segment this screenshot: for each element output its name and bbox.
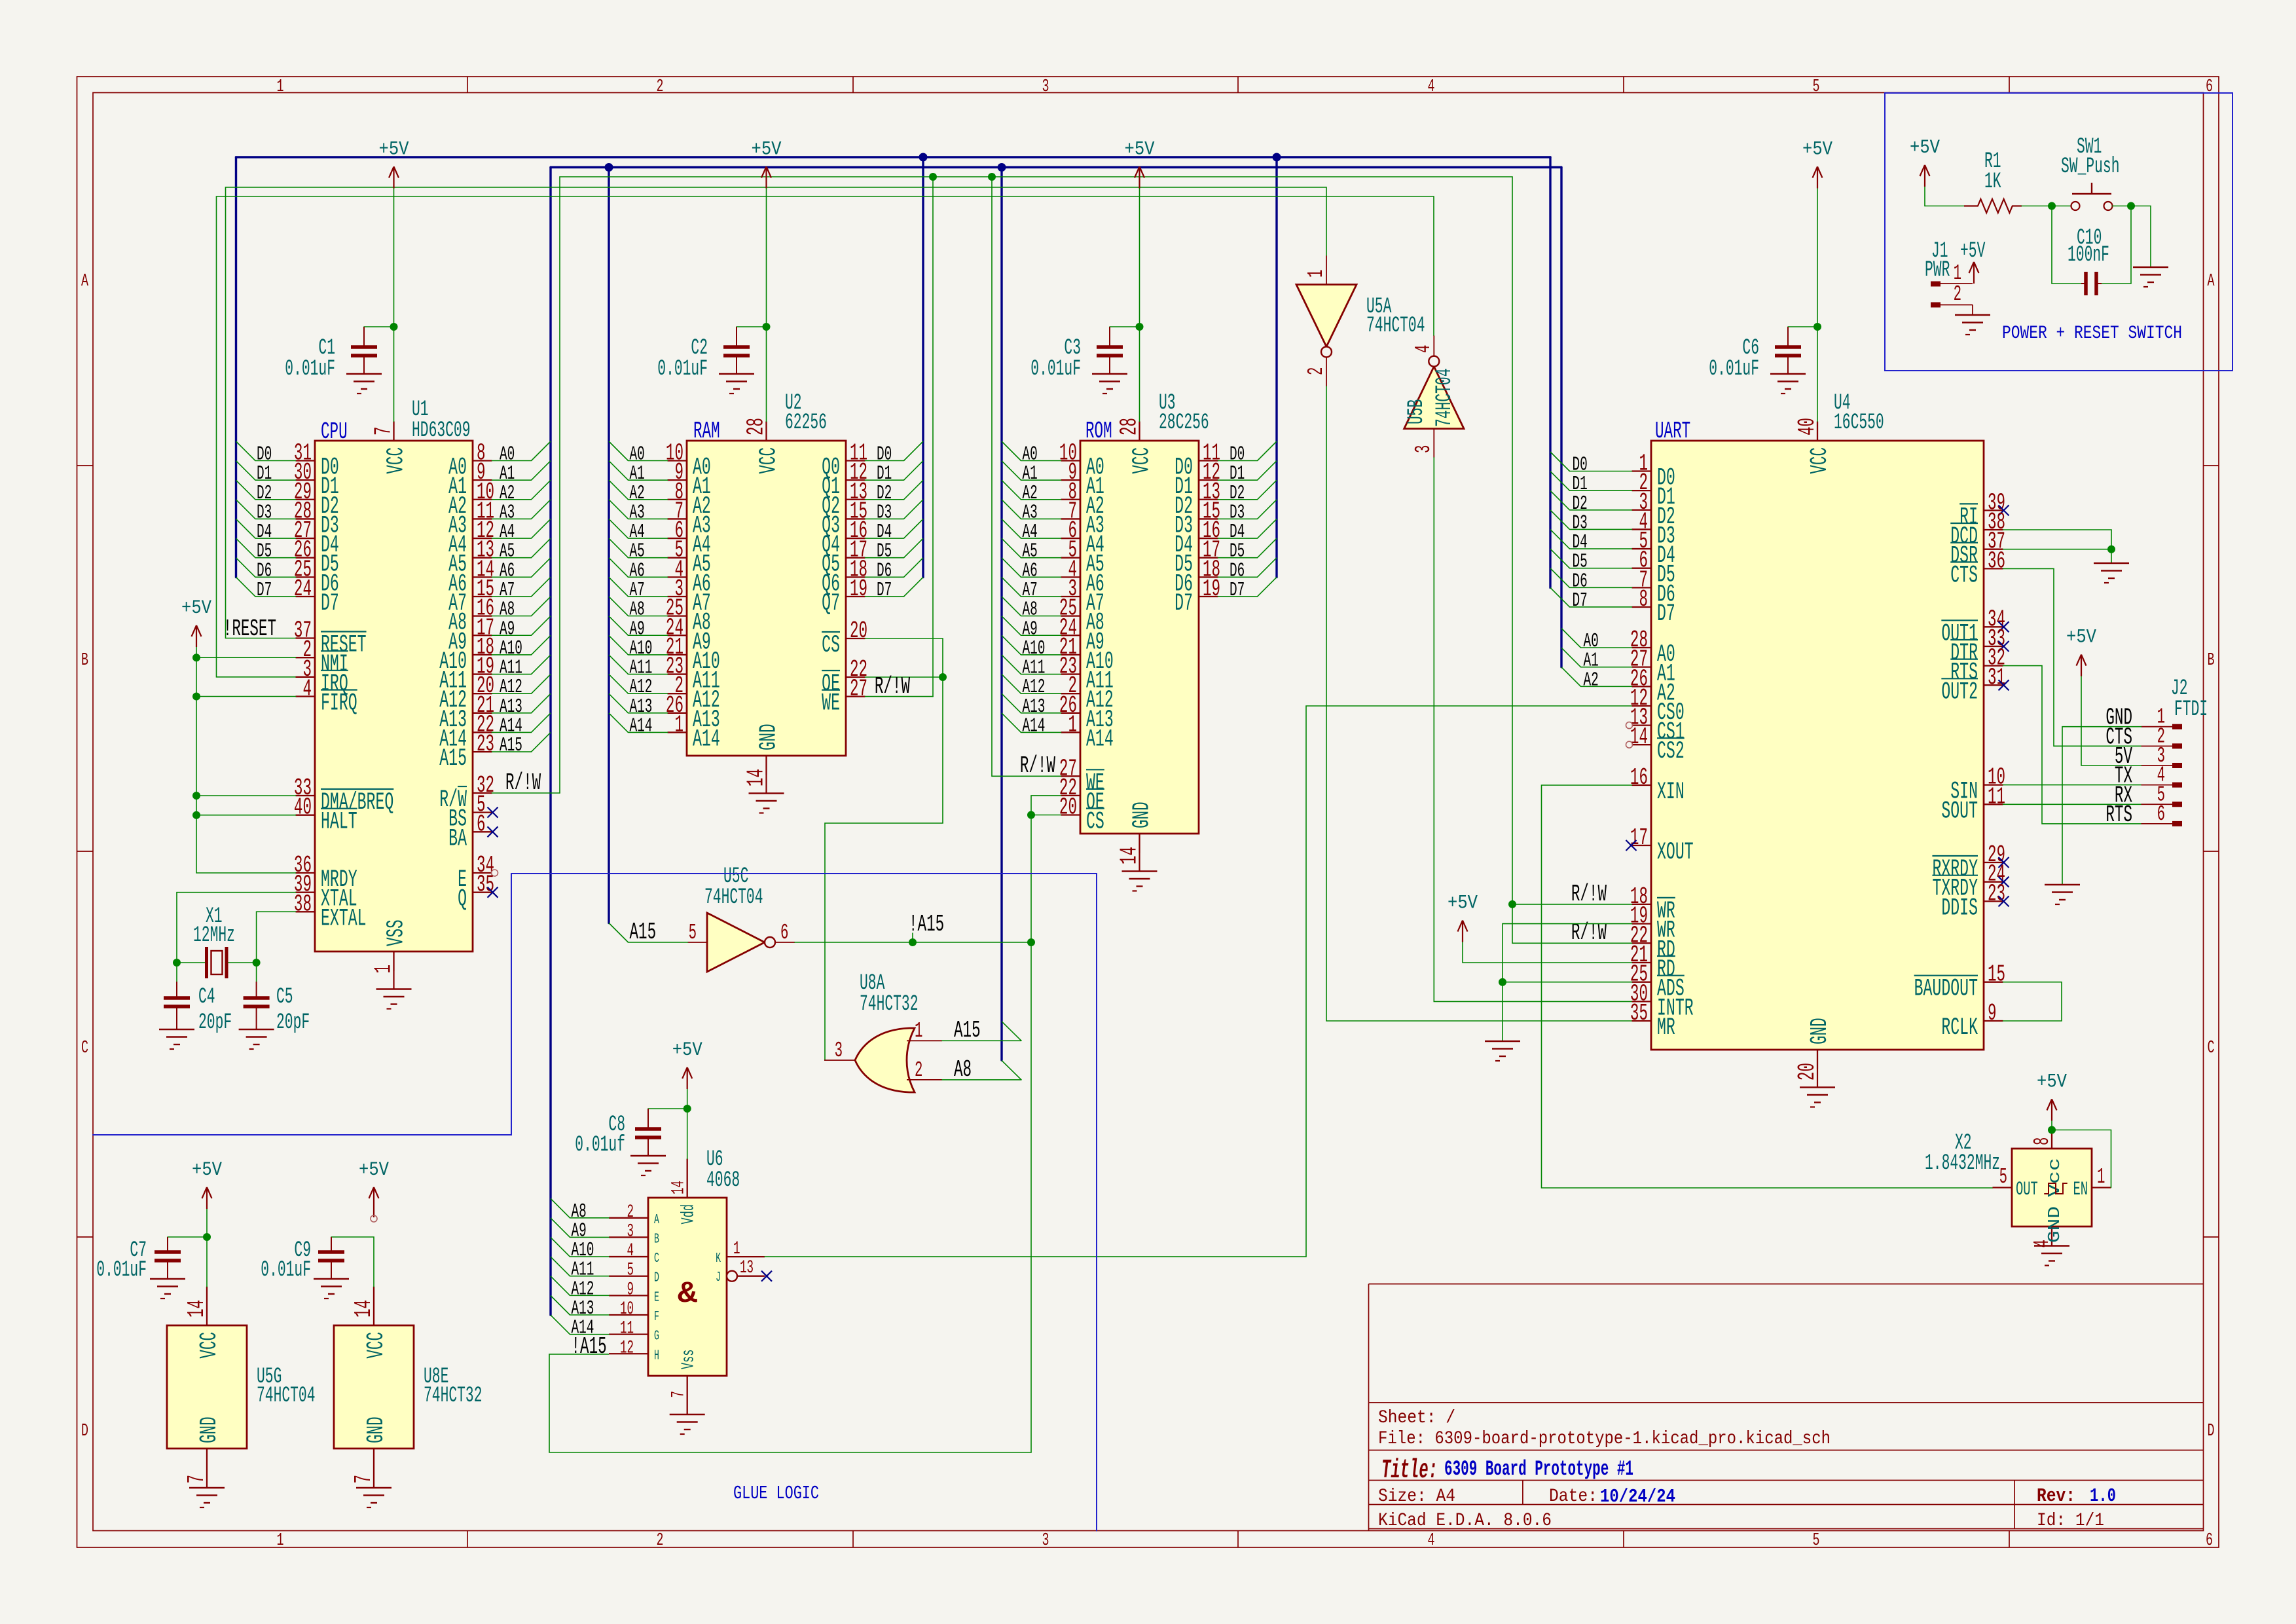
svg-text:CS: CS xyxy=(822,632,840,659)
svg-text:FTDI: FTDI xyxy=(2174,697,2208,722)
svg-text:1.8432MHz: 1.8432MHz xyxy=(1925,1151,2000,1176)
svg-text:WE: WE xyxy=(822,690,840,718)
svg-text:1K: 1K xyxy=(1984,170,2001,194)
svg-text:20pF: 20pF xyxy=(198,1010,232,1035)
svg-text:A14: A14 xyxy=(693,726,720,753)
svg-text:14: 14 xyxy=(350,1300,377,1318)
svg-text:+5V: +5V xyxy=(2037,1071,2067,1094)
svg-text:19: 19 xyxy=(1203,576,1220,602)
svg-text:VCC: VCC xyxy=(363,1332,390,1359)
svg-text:23: 23 xyxy=(477,731,494,758)
svg-text:D: D xyxy=(81,1422,88,1441)
svg-text:D7: D7 xyxy=(1230,579,1245,602)
svg-text:3: 3 xyxy=(627,1221,634,1242)
svg-text:40: 40 xyxy=(294,794,312,821)
svg-text:Vss: Vss xyxy=(680,1350,699,1369)
svg-text:4: 4 xyxy=(1412,345,1436,353)
svg-text:!A15: !A15 xyxy=(572,1333,607,1360)
svg-text:A: A xyxy=(81,272,89,291)
svg-text:+5V: +5V xyxy=(672,1039,702,1061)
svg-text:+5V: +5V xyxy=(1960,239,1986,264)
svg-text:7: 7 xyxy=(183,1475,210,1484)
svg-text:CPU: CPU xyxy=(321,418,348,445)
svg-text:0.01uf: 0.01uf xyxy=(575,1133,625,1158)
svg-text:OUT2: OUT2 xyxy=(1941,678,1978,706)
svg-text:19: 19 xyxy=(850,576,867,602)
svg-text:Vcc: Vcc xyxy=(2045,1158,2064,1197)
svg-text:24: 24 xyxy=(294,576,312,602)
svg-text:FIRQ: FIRQ xyxy=(321,690,357,718)
svg-text:0.01uF: 0.01uF xyxy=(1030,357,1081,382)
svg-text:6: 6 xyxy=(2206,77,2213,97)
svg-text:B: B xyxy=(2208,651,2215,671)
svg-text:1: 1 xyxy=(1304,270,1328,278)
svg-text:A15: A15 xyxy=(500,734,522,757)
svg-text:10: 10 xyxy=(620,1299,634,1319)
svg-text:D7: D7 xyxy=(877,579,892,602)
svg-text:EXTAL: EXTAL xyxy=(321,905,367,932)
svg-text:12MHz: 12MHz xyxy=(193,923,235,948)
svg-text:4: 4 xyxy=(1428,77,1435,97)
svg-text:2: 2 xyxy=(657,77,664,97)
svg-text:1: 1 xyxy=(1068,711,1077,738)
svg-text:CS2: CS2 xyxy=(1657,738,1685,766)
svg-text:3: 3 xyxy=(1412,445,1436,453)
svg-text:K: K xyxy=(716,1251,721,1266)
svg-text:14: 14 xyxy=(183,1300,210,1318)
svg-text:GND: GND xyxy=(196,1416,223,1443)
svg-text:A14: A14 xyxy=(630,714,653,737)
svg-text:A15: A15 xyxy=(439,745,467,773)
svg-text:4: 4 xyxy=(627,1241,634,1261)
svg-text:C4: C4 xyxy=(198,985,215,1010)
svg-text:OUT: OUT xyxy=(2016,1179,2038,1201)
svg-text:74HCT04: 74HCT04 xyxy=(1366,314,1425,339)
svg-text:8: 8 xyxy=(2030,1137,2054,1145)
svg-text:2: 2 xyxy=(657,1531,664,1551)
svg-text:1: 1 xyxy=(674,711,683,738)
svg-text:15: 15 xyxy=(1988,961,2005,988)
svg-text:SOUT: SOUT xyxy=(1941,798,1978,825)
svg-text:0.01uF: 0.01uF xyxy=(657,357,708,382)
svg-text:9: 9 xyxy=(627,1280,634,1300)
svg-text:RTS: RTS xyxy=(2105,802,2132,828)
svg-text:36: 36 xyxy=(1988,547,2005,574)
svg-text:EN: EN xyxy=(2073,1179,2088,1201)
svg-text:4: 4 xyxy=(302,676,312,703)
svg-text:+5V: +5V xyxy=(1125,139,1155,161)
svg-text:R/!W: R/!W xyxy=(1020,752,1055,779)
svg-text:20: 20 xyxy=(1794,1063,1821,1080)
svg-text:RCLK: RCLK xyxy=(1941,1014,1978,1042)
svg-text:HD63C09: HD63C09 xyxy=(412,418,470,443)
svg-text:A2: A2 xyxy=(1584,669,1599,692)
svg-text:+5V: +5V xyxy=(2066,627,2096,649)
svg-text:H: H xyxy=(654,1348,659,1363)
svg-text:A14: A14 xyxy=(1023,714,1046,737)
svg-text:+5V: +5V xyxy=(1802,139,1832,161)
svg-text:Q7: Q7 xyxy=(822,590,840,618)
svg-text:GLUE LOGIC: GLUE LOGIC xyxy=(733,1483,819,1504)
svg-text:DDIS: DDIS xyxy=(1941,895,1978,922)
svg-text:8: 8 xyxy=(1639,586,1648,613)
svg-text:D7: D7 xyxy=(257,579,272,602)
svg-text:0.01uF: 0.01uF xyxy=(261,1258,311,1283)
svg-text:14: 14 xyxy=(743,769,770,786)
svg-text:F: F xyxy=(654,1310,659,1325)
svg-text:VCC: VCC xyxy=(196,1332,223,1359)
svg-text:6: 6 xyxy=(477,811,486,838)
svg-text:GND: GND xyxy=(1129,802,1156,828)
svg-text:74HCT04: 74HCT04 xyxy=(257,1384,315,1409)
svg-text:27: 27 xyxy=(850,676,867,703)
svg-text:2: 2 xyxy=(1954,282,1961,306)
svg-text:1: 1 xyxy=(733,1239,740,1259)
svg-text:J: J xyxy=(716,1270,721,1285)
svg-text:5: 5 xyxy=(1813,77,1820,97)
svg-text:ROM: ROM xyxy=(1085,418,1112,445)
svg-text:&: & xyxy=(678,1277,697,1311)
svg-text:R/!W: R/!W xyxy=(505,769,541,796)
svg-text:74HCT04: 74HCT04 xyxy=(1432,369,1457,427)
svg-text:Rev:: Rev: xyxy=(2037,1485,2075,1507)
svg-text:10/24/24: 10/24/24 xyxy=(1600,1486,1675,1507)
svg-text:100nF: 100nF xyxy=(2068,243,2109,268)
svg-text:1: 1 xyxy=(277,77,284,97)
svg-text:GND: GND xyxy=(756,724,782,750)
svg-text:+5V: +5V xyxy=(192,1159,222,1181)
svg-text:A8: A8 xyxy=(954,1056,972,1083)
svg-text:VCC: VCC xyxy=(1129,447,1156,474)
svg-text:GND: GND xyxy=(2045,1206,2064,1243)
svg-text:62256: 62256 xyxy=(785,411,827,435)
svg-text:E: E xyxy=(654,1290,659,1305)
svg-text:35: 35 xyxy=(1630,1000,1648,1027)
svg-text:+5V: +5V xyxy=(359,1159,389,1181)
svg-text:C: C xyxy=(654,1251,659,1266)
svg-text:0.01uF: 0.01uF xyxy=(285,357,335,382)
svg-text:74HCT04: 74HCT04 xyxy=(704,885,763,910)
svg-text:CTS: CTS xyxy=(1950,562,1978,589)
svg-text:KiCad E.D.A. 8.0.6: KiCad E.D.A. 8.0.6 xyxy=(1378,1511,1552,1531)
svg-text:A: A xyxy=(2208,272,2215,291)
svg-text:2: 2 xyxy=(915,1058,922,1082)
svg-text:GND: GND xyxy=(363,1416,390,1443)
svg-text:BAUDOUT: BAUDOUT xyxy=(1914,976,1978,1003)
svg-text:28: 28 xyxy=(1116,418,1143,435)
svg-text:Title:: Title: xyxy=(1381,1456,1438,1486)
svg-text:28C256: 28C256 xyxy=(1159,411,1209,435)
svg-text:4: 4 xyxy=(1428,1531,1435,1551)
svg-text:BA: BA xyxy=(448,825,467,853)
svg-text:0.01uF: 0.01uF xyxy=(96,1258,147,1283)
svg-text:5: 5 xyxy=(689,921,697,945)
svg-text:1: 1 xyxy=(915,1019,922,1043)
svg-text:UART: UART xyxy=(1655,418,1690,445)
svg-text:38: 38 xyxy=(294,891,312,917)
svg-text:7: 7 xyxy=(669,1391,689,1398)
svg-text:5: 5 xyxy=(627,1261,634,1281)
svg-text:11: 11 xyxy=(1988,783,2005,810)
svg-text:Size: A4: Size: A4 xyxy=(1378,1486,1455,1507)
svg-text:+5V: +5V xyxy=(752,139,782,161)
svg-text:20pF: 20pF xyxy=(276,1010,310,1035)
svg-text:9: 9 xyxy=(1988,1000,1997,1027)
svg-text:XOUT: XOUT xyxy=(1657,839,1694,866)
svg-text:D7: D7 xyxy=(1573,589,1588,612)
svg-text:3: 3 xyxy=(1042,1531,1049,1551)
svg-text:1: 1 xyxy=(2097,1165,2105,1189)
svg-text:Q: Q xyxy=(458,886,467,913)
svg-text:14: 14 xyxy=(1630,724,1648,750)
svg-text:16C550: 16C550 xyxy=(1834,411,1884,435)
svg-text:2: 2 xyxy=(627,1202,634,1223)
svg-text:5: 5 xyxy=(1999,1165,2007,1189)
svg-text:XIN: XIN xyxy=(1657,779,1685,806)
svg-text:HALT: HALT xyxy=(321,809,357,836)
svg-text:7: 7 xyxy=(371,426,397,435)
svg-text:C5: C5 xyxy=(276,985,293,1010)
svg-text:VSS: VSS xyxy=(383,919,410,946)
svg-text:D7: D7 xyxy=(321,590,339,618)
svg-text:A14: A14 xyxy=(1086,726,1114,753)
svg-text:28: 28 xyxy=(743,418,770,435)
svg-text:+5V: +5V xyxy=(379,139,409,161)
svg-text:Date:: Date: xyxy=(1549,1486,1597,1507)
svg-text:B: B xyxy=(654,1232,659,1247)
svg-text:VCC: VCC xyxy=(383,447,410,474)
svg-text:14: 14 xyxy=(669,1181,689,1194)
svg-text:1.0: 1.0 xyxy=(2090,1485,2116,1507)
svg-text:20: 20 xyxy=(1059,794,1077,821)
svg-text:14: 14 xyxy=(1116,847,1143,864)
svg-text:5: 5 xyxy=(1813,1531,1820,1551)
svg-text:6: 6 xyxy=(2206,1531,2213,1551)
svg-text:D7: D7 xyxy=(1657,600,1675,628)
svg-text:!A15: !A15 xyxy=(909,911,944,938)
svg-text:VCC: VCC xyxy=(756,447,782,474)
svg-text:Id: 1/1: Id: 1/1 xyxy=(2037,1511,2104,1531)
svg-text:13: 13 xyxy=(740,1258,754,1278)
svg-text:MR: MR xyxy=(1657,1014,1675,1042)
svg-text:2: 2 xyxy=(1304,367,1328,375)
svg-text:+5V: +5V xyxy=(1448,893,1478,915)
svg-text:A: A xyxy=(654,1213,659,1228)
svg-text:C: C xyxy=(81,1039,88,1058)
svg-text:+5V: +5V xyxy=(1910,137,1940,159)
svg-text:6: 6 xyxy=(2157,802,2165,826)
svg-text:!RESET: !RESET xyxy=(223,616,276,642)
svg-text:3: 3 xyxy=(1042,77,1049,97)
svg-text:A15: A15 xyxy=(954,1017,981,1044)
svg-text:VCC: VCC xyxy=(1806,447,1833,474)
svg-text:4068: 4068 xyxy=(706,1168,740,1193)
svg-text:3: 3 xyxy=(835,1039,843,1063)
svg-text:G: G xyxy=(654,1329,659,1344)
svg-text:U5B: U5B xyxy=(1404,399,1429,424)
svg-text:SW_Push: SW_Push xyxy=(2061,155,2119,179)
svg-text:Vdd: Vdd xyxy=(680,1204,699,1224)
svg-text:R/!W: R/!W xyxy=(875,673,910,700)
svg-text:C: C xyxy=(2208,1039,2215,1058)
svg-text:PWR: PWR xyxy=(1925,258,1950,283)
svg-text:POWER + RESET SWITCH: POWER + RESET SWITCH xyxy=(2002,323,2182,344)
svg-text:1: 1 xyxy=(371,965,397,974)
svg-text:7: 7 xyxy=(350,1475,377,1484)
svg-text:RAM: RAM xyxy=(693,418,720,445)
svg-text:R/!W: R/!W xyxy=(1571,881,1607,908)
svg-text:1: 1 xyxy=(277,1531,284,1551)
svg-text:B: B xyxy=(81,651,88,671)
svg-text:6309 Board Prototype #1: 6309 Board Prototype #1 xyxy=(1444,1457,1633,1481)
svg-text:CS: CS xyxy=(1086,809,1104,836)
svg-text:0.01uF: 0.01uF xyxy=(1709,357,1759,382)
svg-text:D: D xyxy=(654,1271,659,1286)
svg-text:+5V: +5V xyxy=(181,597,211,619)
svg-text:File: 6309-board-prototype-1.k: File: 6309-board-prototype-1.kicad_pro.k… xyxy=(1378,1429,1831,1449)
svg-text:11: 11 xyxy=(620,1319,634,1339)
svg-text:40: 40 xyxy=(1794,418,1821,435)
svg-text:16: 16 xyxy=(1630,764,1648,791)
svg-text:GND: GND xyxy=(1806,1018,1833,1044)
svg-text:74HCT32: 74HCT32 xyxy=(860,992,918,1017)
svg-text:12: 12 xyxy=(620,1338,634,1358)
svg-text:74HCT32: 74HCT32 xyxy=(424,1384,482,1409)
svg-text:Sheet: /: Sheet: / xyxy=(1378,1408,1455,1428)
svg-text:D: D xyxy=(2208,1422,2215,1441)
svg-text:A15: A15 xyxy=(630,919,657,946)
svg-text:6: 6 xyxy=(780,921,788,945)
svg-text:D7: D7 xyxy=(1175,590,1193,618)
svg-text:20: 20 xyxy=(850,618,867,644)
